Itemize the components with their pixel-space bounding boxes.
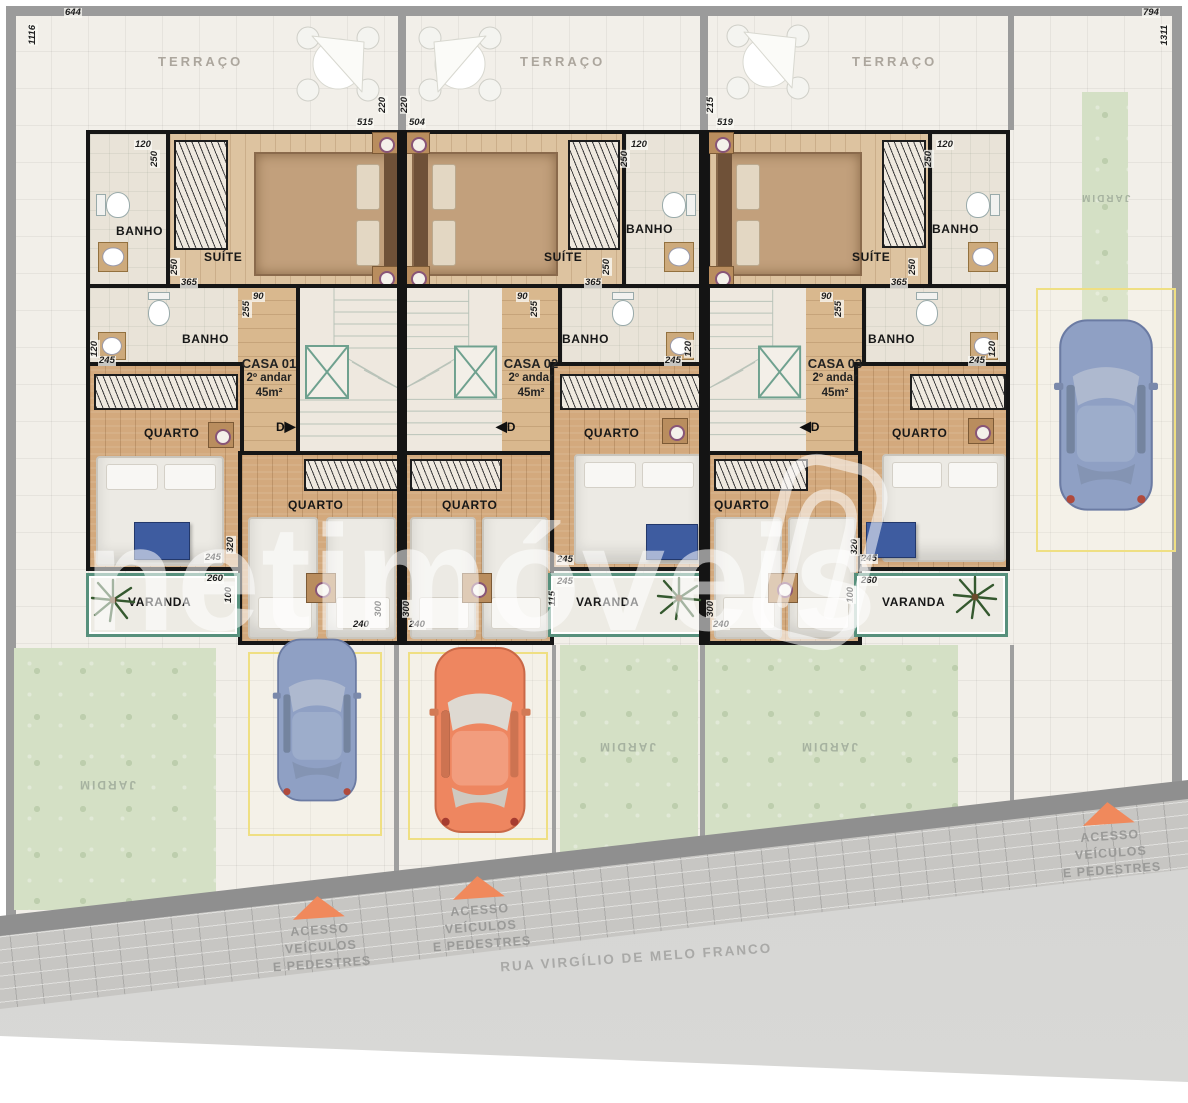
dim: 255 — [242, 300, 252, 318]
casa3-closet — [882, 140, 926, 248]
dim: 215 — [706, 96, 716, 114]
casa3-title: CASA 032º andar45m² — [804, 356, 866, 401]
casa2-suite — [402, 130, 626, 288]
car-blue-parking-right — [1054, 312, 1158, 518]
fence-2 — [552, 645, 556, 875]
casa1-bath-suite-label: BANHO — [116, 224, 163, 238]
dim: 245 — [968, 356, 986, 366]
dim: 120 — [988, 340, 998, 358]
casa1-suite-label: SUÍTE — [204, 250, 242, 264]
casa2-stairs — [402, 284, 506, 455]
casa1-title: CASA 012º andar45m² — [238, 356, 300, 401]
palm-plant-3 — [952, 574, 998, 620]
palm-plant-2 — [656, 575, 702, 621]
casa1-wardrobe — [94, 374, 238, 410]
casa2-closet — [568, 140, 620, 250]
casa2-bedroom-main — [550, 362, 706, 571]
casa3-varanda-label: VARANDA — [882, 595, 945, 609]
dim: 250 — [170, 258, 180, 276]
fence-3 — [700, 645, 705, 867]
casa1-closet — [174, 140, 228, 250]
dim: 245 — [98, 356, 116, 366]
dim: 240 — [352, 620, 370, 630]
dim: 120 — [684, 340, 694, 358]
dim: 120 — [936, 140, 954, 150]
casa1-bedroom-second-label: QUARTO — [288, 498, 343, 512]
dim: 120 — [630, 140, 648, 150]
dim: 245 — [556, 577, 574, 587]
dim: 240 — [408, 620, 426, 630]
patio-table-1 — [292, 16, 384, 108]
dim: 250 — [908, 258, 918, 276]
terrace-2-label: TERRAÇO — [520, 54, 605, 69]
casa2-title: CASA 022º andar45m² — [500, 356, 562, 401]
dim: 90 — [252, 292, 265, 302]
dim: 245 — [204, 553, 222, 563]
casa1-wardrobe-2 — [304, 459, 402, 491]
dim: 255 — [834, 300, 844, 318]
garden-middle-right-label: JARDIM — [800, 740, 858, 754]
casa2-varanda-label: VARANDA — [576, 595, 639, 609]
dim: 365 — [180, 278, 198, 288]
casa2-suite-label: SUÍTE — [544, 250, 582, 264]
dim: 300 — [706, 600, 716, 618]
garden-middle-left-label: JARDIM — [598, 740, 656, 754]
patio-table-2 — [414, 16, 506, 108]
dim: 1311 — [1160, 24, 1170, 46]
dim: 519 — [716, 118, 734, 128]
party-wall-2 — [699, 130, 709, 645]
dim: 260 — [206, 574, 224, 584]
casa1-suite-bed — [254, 152, 400, 276]
dim: 1116 — [28, 24, 38, 46]
dim: 100 — [224, 586, 234, 604]
dim: 365 — [584, 278, 602, 288]
casa1-desk — [134, 522, 190, 560]
dim: 250 — [620, 150, 630, 168]
dim: 250 — [924, 150, 934, 168]
dim: 240 — [712, 620, 730, 630]
casa2-wardrobe — [560, 374, 702, 410]
lot-wall-top — [6, 6, 1182, 16]
dim: 504 — [408, 118, 426, 128]
dim: 120 — [134, 140, 152, 150]
dim: 245 — [556, 555, 574, 565]
access-arrow-icon — [1081, 800, 1134, 826]
casa2-door-mark: ◀D — [496, 418, 515, 435]
casa3-bedroom-second-label: QUARTO — [714, 498, 769, 512]
casa2-bedroom-main-label: QUARTO — [584, 426, 639, 440]
dim: 115 — [548, 590, 558, 607]
casa2-bath-suite — [622, 130, 706, 288]
casa3-suite-label: SUÍTE — [852, 250, 890, 264]
dim: 220 — [400, 96, 410, 114]
dim: 245 — [664, 356, 682, 366]
dim: 644 — [64, 8, 82, 18]
casa3-bath-suite — [928, 130, 1010, 288]
floor-plan: JARDIM JARDIM JARDIM JARDIM TERRAÇO TERR… — [0, 0, 1188, 1103]
car-orange-driveway-2 — [420, 644, 540, 836]
casa2-desk — [646, 524, 698, 560]
dim: 250 — [602, 258, 612, 276]
terrace-1-label: TERRAÇO — [158, 54, 243, 69]
fence-1 — [394, 645, 399, 897]
dim: 90 — [820, 292, 833, 302]
casa2-suite-bed — [412, 152, 558, 276]
casa2-bedroom-second — [402, 451, 554, 645]
terrace-wall-right — [1008, 14, 1014, 130]
casa3-door-mark: ◀D — [800, 418, 819, 435]
car-blue-driveway-1 — [266, 636, 368, 804]
casa1-suite — [166, 130, 402, 288]
casa3-bedroom-main-label: QUARTO — [892, 426, 947, 440]
dim: 90 — [516, 292, 529, 302]
casa3-suite — [706, 130, 932, 288]
access-marker-2: ACESSOVEÍCULOSE PEDESTRES — [398, 871, 563, 959]
dim: 300 — [402, 600, 412, 618]
casa1-stairs — [296, 284, 402, 455]
dim: 255 — [530, 300, 540, 318]
dim: 320 — [226, 536, 236, 554]
terrace-3-label: TERRAÇO — [852, 54, 937, 69]
casa3-bath-mid-label: BANHO — [868, 332, 915, 346]
palm-plant-1 — [90, 577, 136, 623]
casa3-wardrobe — [910, 374, 1006, 410]
access-marker-3: ACESSOVEÍCULOSE PEDESTRES — [1028, 797, 1188, 885]
access-marker-1: ACESSOVEÍCULOSE PEDESTRES — [238, 891, 403, 979]
casa1-bath-mid-label: BANHO — [182, 332, 229, 346]
dim: 300 — [374, 600, 384, 618]
dim: 250 — [150, 150, 160, 168]
casa2-bath-suite-label: BANHO — [626, 222, 673, 236]
casa1-bedroom-main-label: QUARTO — [144, 426, 199, 440]
dim: 794 — [1142, 8, 1160, 18]
casa2-wardrobe-2 — [410, 459, 502, 491]
casa3-suite-bed — [716, 152, 862, 276]
access-arrow-icon — [291, 894, 344, 920]
dim: 220 — [378, 96, 388, 114]
patio-table-3 — [722, 14, 814, 106]
access-arrow-icon — [451, 874, 504, 900]
casa3-stairs — [706, 284, 810, 455]
casa1-door-mark: D▶ — [276, 418, 295, 435]
party-wall-1 — [397, 130, 407, 645]
garden-right-label: JARDIM — [1080, 192, 1130, 203]
casa2-bedroom-second-label: QUARTO — [442, 498, 497, 512]
casa2-bath-mid-label: BANHO — [562, 332, 609, 346]
garden-left-label: JARDIM — [78, 778, 136, 792]
casa3-bath-suite-label: BANHO — [932, 222, 979, 236]
dim: 365 — [890, 278, 908, 288]
dim: 515 — [356, 118, 374, 128]
casa1-bedroom-main — [86, 362, 244, 571]
casa1-varanda-label: VARANDA — [128, 595, 191, 609]
